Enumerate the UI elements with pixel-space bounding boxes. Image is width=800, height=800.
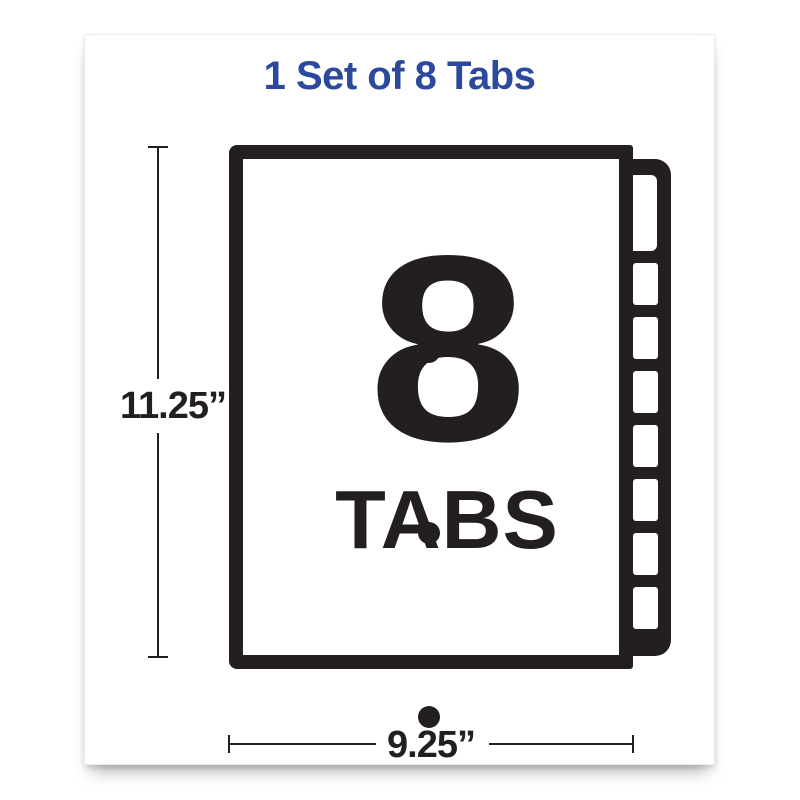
height-dimension-value: 11.25” [83,384,263,428]
tab-slot [633,263,658,305]
height-dimension-line [157,433,159,656]
height-dimension-tick [148,146,168,148]
product-image-card: 1 Set of 8 Tabs 8 TABS 11.25” 9.25” [84,34,715,765]
tab-slot [633,317,658,359]
tab-slot [633,587,658,629]
tab-slot [633,425,658,467]
tab-count-numeral: 8 [286,214,610,484]
tab-slot [633,479,658,521]
width-dimension-value: 9.25” [356,723,506,767]
width-dimension-line [230,743,376,745]
index-tab [633,175,657,251]
tab-rail [619,159,671,656]
tab-slot [633,371,658,413]
tab-slot [633,533,658,575]
height-dimension-line [157,147,159,379]
page-title: 1 Set of 8 Tabs [85,56,714,96]
tab-count-label: TABS [297,478,597,561]
width-dimension-line [489,743,633,745]
height-dimension-tick [148,656,168,658]
